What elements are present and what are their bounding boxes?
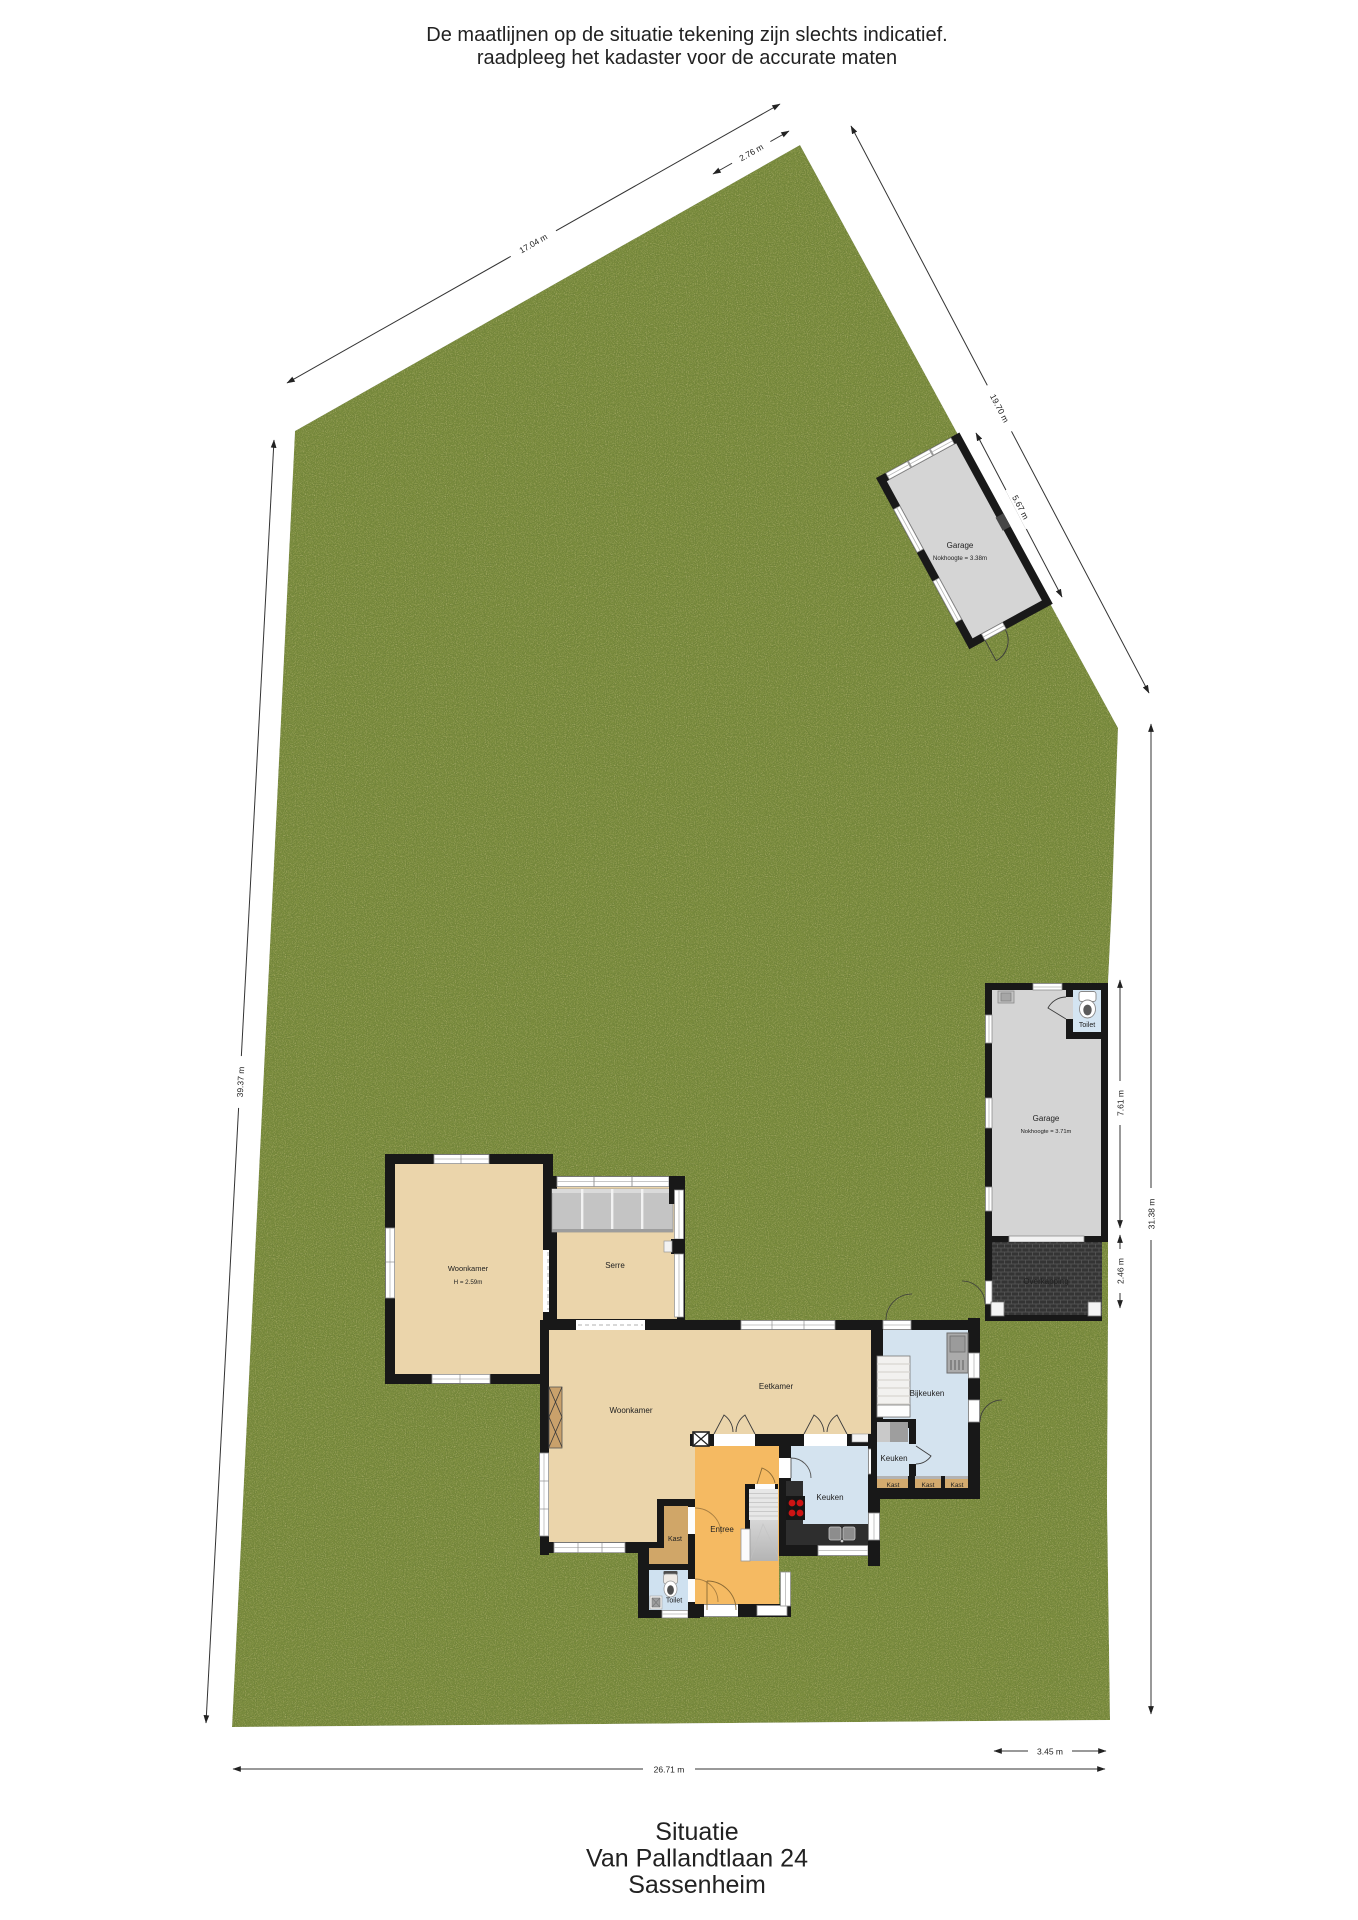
svg-text:Garage: Garage [1033, 1114, 1060, 1123]
svg-text:31.38 m: 31.38 m [1147, 1199, 1157, 1230]
svg-text:Kast: Kast [921, 1482, 934, 1489]
svg-text:Toilet: Toilet [666, 1598, 682, 1605]
svg-text:Situatie: Situatie [655, 1818, 738, 1846]
svg-text:Kast: Kast [950, 1482, 963, 1489]
svg-text:Overkapping: Overkapping [1023, 1277, 1068, 1286]
svg-text:Nokhoogte = 3.71m: Nokhoogte = 3.71m [1021, 1129, 1072, 1135]
svg-text:Keuken: Keuken [880, 1454, 907, 1463]
svg-text:Sassenheim: Sassenheim [628, 1871, 766, 1899]
svg-text:Bijkeuken: Bijkeuken [910, 1389, 945, 1398]
svg-text:Nokhoogte = 3.38m: Nokhoogte = 3.38m [933, 555, 987, 562]
svg-text:7.61 m: 7.61 m [1116, 1090, 1126, 1116]
svg-text:2.46 m: 2.46 m [1116, 1258, 1126, 1284]
svg-text:Keuken: Keuken [816, 1493, 843, 1502]
svg-text:Van Pallandtlaan 24: Van Pallandtlaan 24 [586, 1845, 808, 1873]
svg-text:3.45 m: 3.45 m [1037, 1747, 1063, 1757]
svg-text:Woonkamer: Woonkamer [448, 1264, 489, 1273]
svg-text:Serre: Serre [605, 1261, 625, 1270]
svg-text:39.37 m: 39.37 m [235, 1066, 247, 1097]
svg-text:H = 2.59m: H = 2.59m [454, 1279, 483, 1286]
svg-text:Woonkamer: Woonkamer [610, 1406, 653, 1415]
svg-text:Kast: Kast [886, 1482, 899, 1489]
svg-text:Entree: Entree [710, 1525, 734, 1534]
svg-text:De maatlijnen op de situatie t: De maatlijnen op de situatie tekening zi… [426, 24, 947, 46]
svg-text:26.71 m: 26.71 m [654, 1765, 685, 1775]
svg-text:Garage: Garage [947, 541, 974, 550]
svg-text:Toilet: Toilet [1079, 1022, 1095, 1029]
svg-text:Kast: Kast [668, 1536, 682, 1543]
svg-text:raadpleeg het kadaster voor de: raadpleeg het kadaster voor de accurate … [477, 47, 897, 69]
svg-text:Eetkamer: Eetkamer [759, 1382, 794, 1391]
